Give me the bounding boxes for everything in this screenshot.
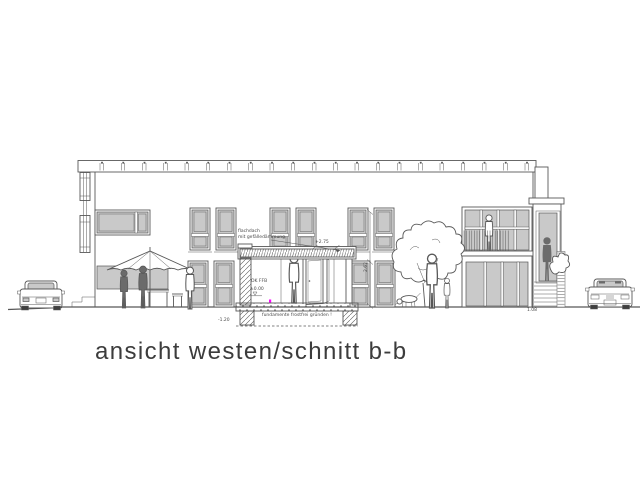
floor-slab xyxy=(236,303,358,311)
annotation-roof-note-line1: flachdach xyxy=(238,229,260,234)
balcony-slab xyxy=(459,251,534,256)
tower-parapet xyxy=(535,167,548,199)
porch-section xyxy=(236,240,358,311)
downpipe xyxy=(80,173,90,253)
tree-child xyxy=(444,278,450,308)
drawing-canvas: flachdach mit gefälledämmung +2.75 2.62 … xyxy=(0,0,640,480)
annotation-roof-note-line2: mit gefälledämmung xyxy=(238,235,285,240)
dog xyxy=(395,293,421,307)
main-roof xyxy=(78,161,536,173)
annotation-foundation-note: fundamente frostfrei gründen ! xyxy=(262,313,332,318)
stair-tower xyxy=(529,167,570,307)
section-marker xyxy=(269,300,271,303)
porch-door xyxy=(303,257,329,305)
tower-cap xyxy=(529,198,564,204)
annotation-dim-stair: 1.08 xyxy=(527,308,537,313)
wide-window xyxy=(95,210,150,235)
patio-stool xyxy=(172,294,183,307)
section-cut-wall xyxy=(240,258,251,305)
upper-floor-windows xyxy=(188,208,396,252)
level-mark xyxy=(253,292,257,295)
drawing-title: ansicht westen/schnitt b-b xyxy=(95,338,408,366)
porch-person xyxy=(289,255,299,303)
porch-post xyxy=(346,258,352,303)
car-left xyxy=(18,281,65,310)
car-right xyxy=(586,279,635,309)
balcony xyxy=(459,207,534,307)
annotation-level-foundation: -1.20 xyxy=(218,318,230,323)
annotation-level-porch-roof: +2.75 xyxy=(315,240,329,245)
annotation-interior-label: OK FFB xyxy=(251,279,267,284)
annotation-dim-height: 2.62 xyxy=(364,262,369,272)
annotation-level-floor: ±0.00 xyxy=(250,287,264,292)
